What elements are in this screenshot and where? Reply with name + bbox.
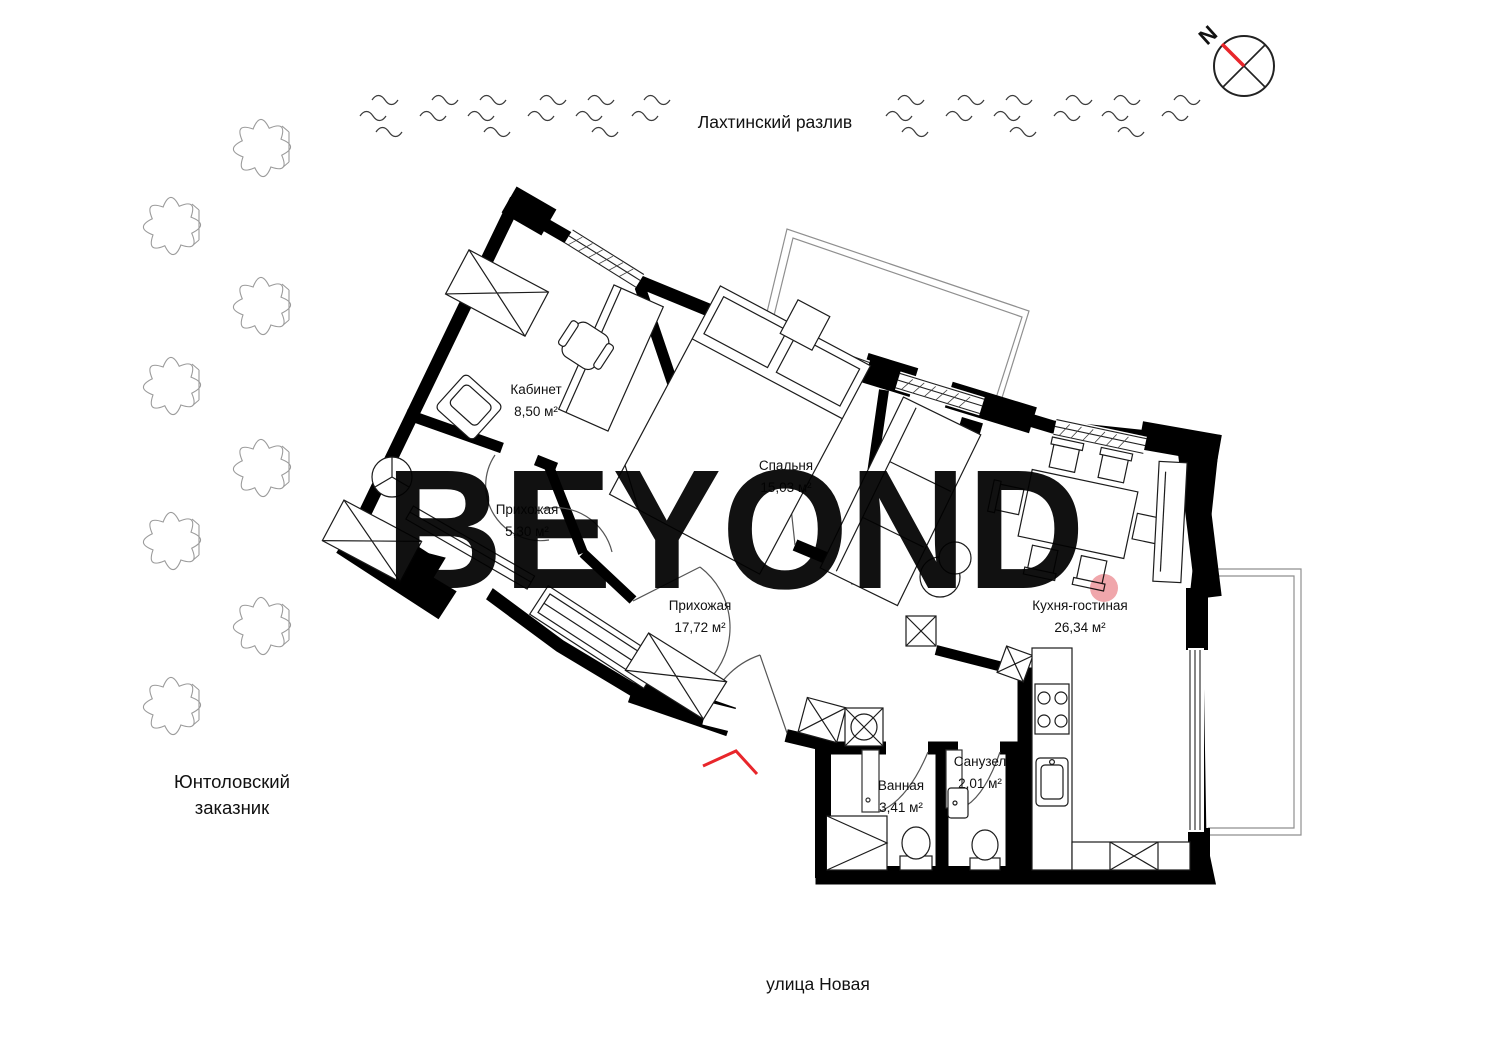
water-label: Лахтинский разлив: [698, 112, 852, 132]
tree-icon: [233, 439, 290, 496]
window-kitchen-right: [1188, 648, 1204, 832]
tree-icon: [233, 277, 290, 334]
stove: [1035, 684, 1069, 734]
tree-icon: [143, 357, 200, 414]
kitchen-sink: [1036, 758, 1068, 806]
wc-sink: [948, 788, 968, 818]
room-area: 2,01 м²: [958, 776, 1002, 791]
shower: [827, 816, 887, 870]
watermark-dot: [1090, 574, 1118, 602]
room-label: Санузел: [954, 754, 1007, 769]
watermark: BEYOND: [385, 435, 1118, 625]
room-label: Ванная: [878, 778, 924, 793]
tree-icons: [143, 119, 290, 734]
tree-icon: [143, 197, 200, 254]
toilet: [970, 830, 1000, 870]
tree-icon: [143, 677, 200, 734]
tall-cabinet: [1153, 461, 1187, 582]
room-area: 8,50 м²: [514, 404, 558, 419]
reserve-label-line1: Юнтоловский: [174, 771, 290, 792]
washing-machine: [845, 708, 883, 746]
floor-plan-page: N Кабинет 8,50 м² Спальня 15,03 м² Прихо…: [0, 0, 1500, 1061]
tree-icon: [233, 597, 290, 654]
floor-plan: N Кабинет 8,50 м² Спальня 15,03 м² Прихо…: [0, 0, 1500, 1061]
compass-icon: N: [1194, 21, 1274, 96]
reserve-label-line2: заказник: [195, 797, 270, 818]
room-area: 3,41 м²: [879, 800, 923, 815]
tree-icon: [233, 119, 290, 176]
tree-icon: [143, 512, 200, 569]
street-label: улица Новая: [766, 974, 870, 994]
room-label: Кабинет: [510, 382, 561, 397]
entrance-mark: [703, 751, 757, 774]
balcony-outline: [1208, 569, 1301, 835]
compass-north-label: N: [1194, 21, 1223, 50]
watermark-text: BEYOND: [385, 435, 1085, 625]
toilet: [900, 827, 932, 870]
compass-needle: [1222, 44, 1244, 66]
